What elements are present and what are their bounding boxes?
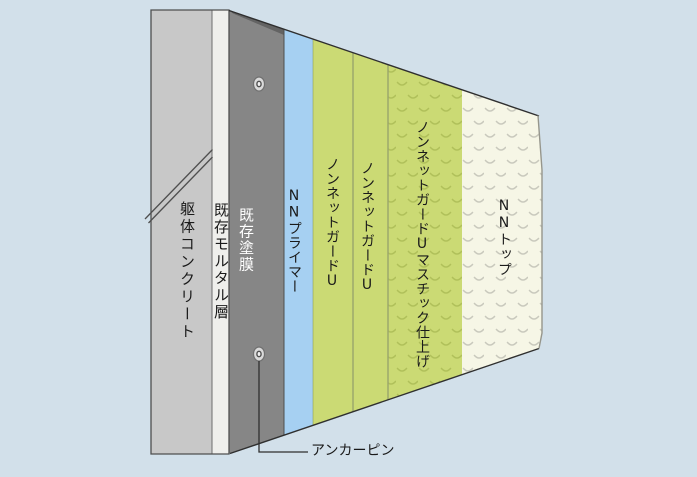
- label-nn-primer: NNプライマー: [287, 188, 301, 294]
- label-existing-mortar: 既存モルタル層: [213, 202, 228, 321]
- label-nonnet-guard-u-1: ノンネットガードU: [325, 157, 339, 290]
- diagram-canvas: [0, 0, 697, 477]
- label-anchor-pin: アンカーピン: [311, 444, 394, 458]
- label-existing-coating: 既存塗膜: [238, 207, 253, 273]
- label-nonnet-guard-u-2: ノンネットガードU: [360, 161, 374, 294]
- anchor-pin-icon-top: [254, 77, 265, 91]
- anchor-pin-icon-bottom: [254, 347, 265, 361]
- coating-system-diagram: 躯体コンクリート 既存モルタル層 既存塗膜 NNプライマー ノンネットガードU …: [0, 0, 697, 477]
- label-nonnet-guard-u-mastic: ノンネットガードUマスチック仕上げ: [415, 120, 429, 369]
- label-nn-top: NNトップ: [497, 198, 511, 277]
- label-concrete: 躯体コンクリート: [179, 201, 194, 341]
